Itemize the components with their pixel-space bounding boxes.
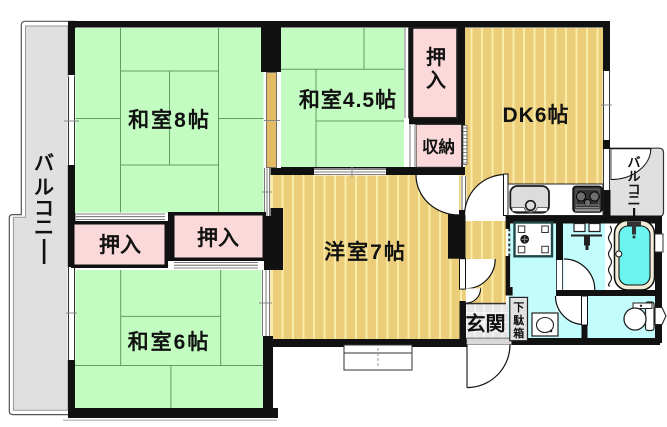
svg-text:洋室7帖: 洋室7帖 (324, 240, 407, 264)
svg-text:和室8帖: 和室8帖 (128, 108, 211, 132)
svg-text:駄: 駄 (513, 313, 525, 327)
svg-text:箱: 箱 (513, 326, 524, 340)
svg-text:玄関: 玄関 (466, 312, 506, 336)
svg-text:和室6帖: 和室6帖 (128, 330, 211, 354)
svg-text:バ: バ (627, 155, 640, 170)
svg-text:収納: 収納 (422, 137, 455, 157)
svg-text:DK6帖: DK6帖 (502, 104, 569, 127)
svg-text:押入: 押入 (197, 226, 239, 250)
svg-text:和室4.5帖: 和室4.5帖 (299, 88, 397, 112)
svg-text:押入: 押入 (99, 233, 141, 257)
svg-text:押: 押 (426, 45, 446, 69)
svg-text:ル: ル (34, 177, 54, 199)
svg-text:ニ: ニ (627, 193, 640, 208)
svg-text:ニ: ニ (34, 217, 54, 239)
svg-text:下: 下 (513, 301, 524, 314)
svg-text:バ: バ (34, 152, 54, 175)
svg-text:入: 入 (426, 69, 446, 92)
